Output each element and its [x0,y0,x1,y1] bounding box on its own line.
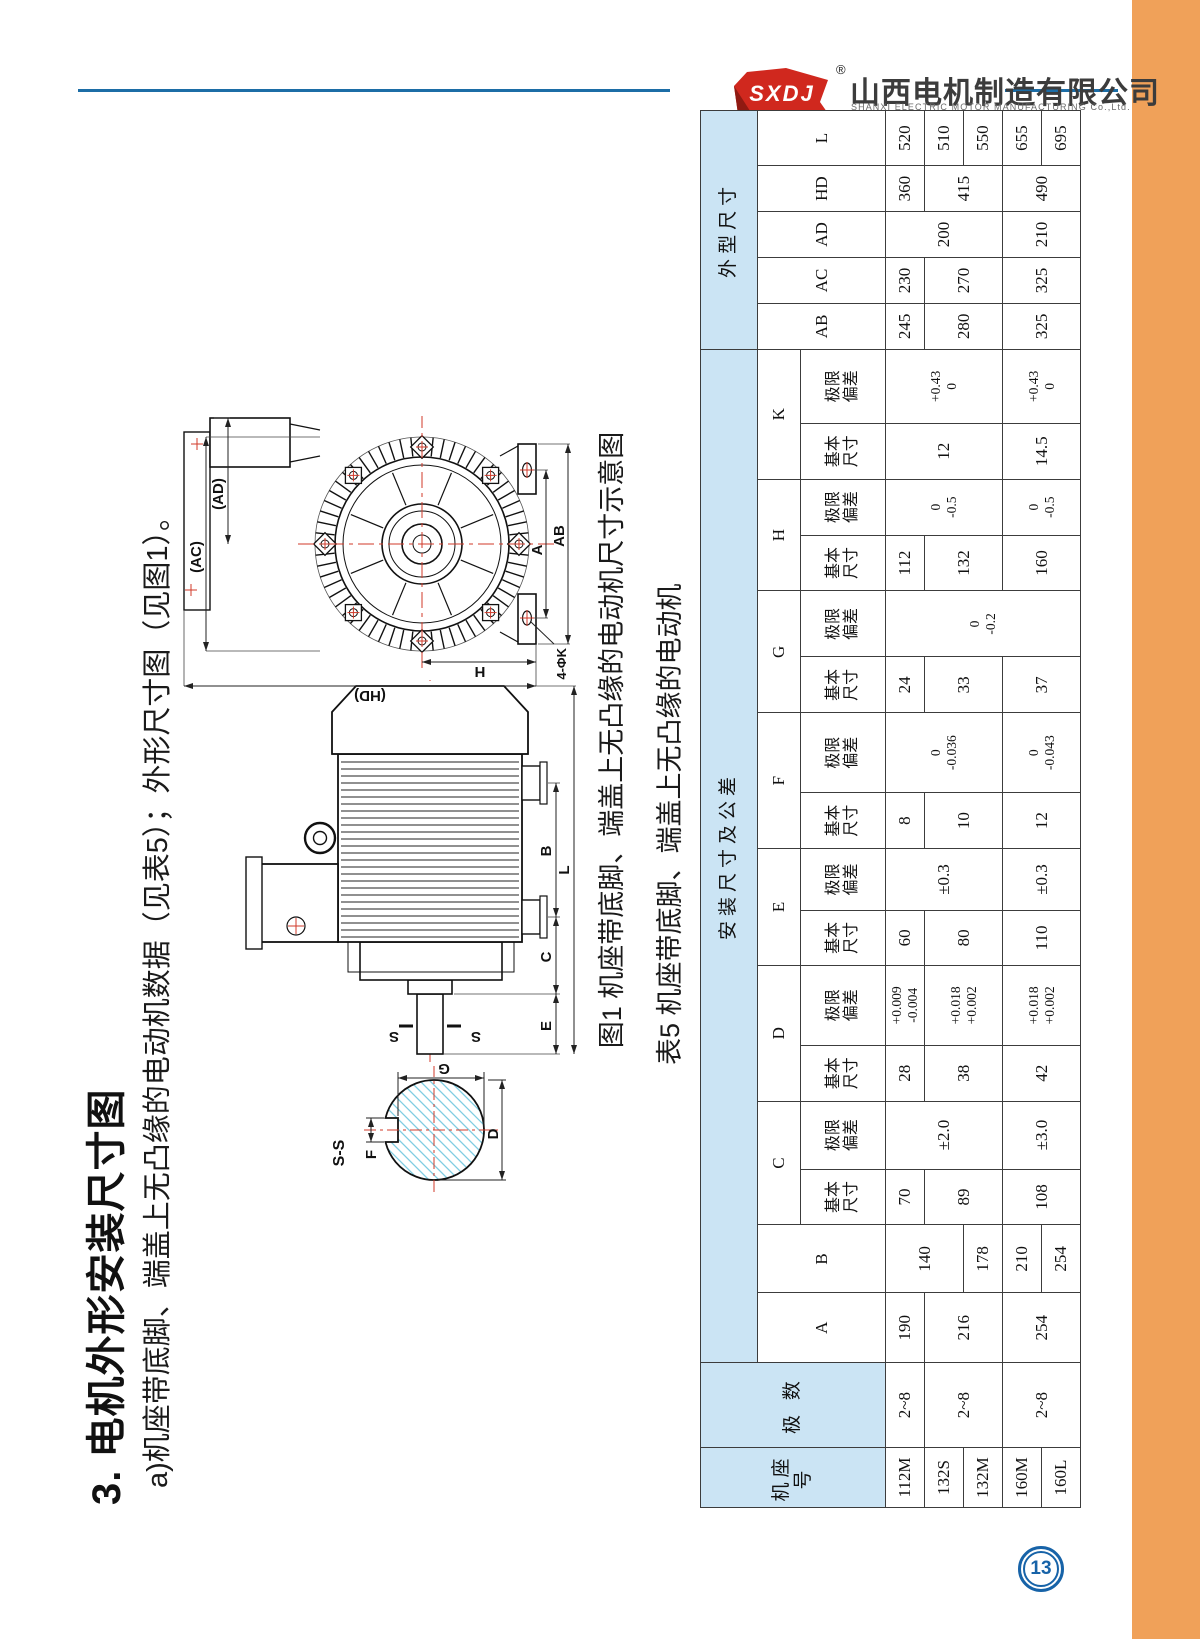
table-cell: 655 [1003,111,1042,166]
table-cell: D [758,965,801,1101]
table-cell: 210 [1003,1225,1042,1293]
table-cell: 190 [886,1293,925,1363]
dim-label-e: E [538,1021,555,1031]
figure-side-view: S S [198,674,580,1062]
dim-label-ad: (AD) [210,478,227,510]
table-cell: 12 [886,423,1003,479]
section-view-title: S-S [331,1139,348,1166]
table-cell: 200 [886,212,1003,258]
table-cell: 基本 尺寸 [801,423,886,479]
page-subtitle: a)机座带底脚、端盖上无凸缘的电动机数据（见表5）；外形尺寸图（见图1）。 [134,502,176,1488]
table-cell: E [758,849,801,966]
table-cell: 基本 尺寸 [801,1045,886,1101]
dim-label-l: L [556,865,573,874]
table-cell: A [758,1293,886,1363]
dim-label-d: D [485,1128,502,1139]
table-cell: 360 [886,166,925,212]
table-cell: 0 -0.043 [1003,713,1081,793]
table-cell: 520 [886,111,925,166]
table-cell: 510 [925,111,964,166]
page-edge-band [1132,0,1200,1639]
table-cell: +0.43 0 [1003,349,1081,423]
table-cell: HD [758,166,886,212]
rotated-content: 3. 电机外形安装尺寸图 a)机座带底脚、端盖上无凸缘的电动机数据（见表5）；外… [60,110,1080,1520]
table-cell: 230 [886,257,925,303]
table-cell: AD [758,212,886,258]
table-cell: C [758,1101,801,1225]
table-cell: 0 -0.036 [886,713,1003,793]
spec-table: 机座号极 数安装尺寸及公差外型尺寸ABCDEFGHKABACADHDL基本 尺寸… [700,110,1081,1508]
table-cell: 10 [925,793,1003,849]
table-cell: 24 [886,657,925,713]
table-cell: 112M [886,1448,925,1508]
table-cell: 极限 偏差 [801,349,886,423]
table-cell: 基本 尺寸 [801,910,886,965]
dim-label-g: G [438,1060,450,1077]
table-cell: F [758,713,801,849]
table-cell: 33 [925,657,1003,713]
table-cell: 0 -0.5 [1003,479,1081,535]
table-cell: 325 [1003,257,1081,303]
table-cell: 38 [925,1045,1003,1101]
table-cell: 极限 偏差 [801,1101,886,1169]
table-cell: 基本 尺寸 [801,793,886,849]
table-cell: 14.5 [1003,423,1081,479]
table-cell: +0.009 -0.004 [886,965,925,1045]
page-number-badge: 13 [1018,1546,1064,1592]
table-cell: 132 [925,535,1003,591]
header-rule-left [78,89,670,92]
page-title: 3. 电机外形安装尺寸图 [74,1089,132,1505]
catalog-page: SXDJ ® 山西电机制造有限公司 SHANXI ELECTRIC MOTOR … [0,0,1200,1639]
brand-logo-text: SXDJ [749,81,814,106]
table-cell: 2~8 [925,1363,1003,1448]
dim-label-a: A [529,544,546,555]
table-cell: 8 [886,793,925,849]
table-cell: +0.43 0 [886,349,1003,423]
table-cell: 112 [886,535,925,591]
table-cell: 机座号 [701,1448,886,1508]
table-cell: 极限 偏差 [801,713,886,793]
table-cell: 210 [1003,212,1081,258]
table-cell: 695 [1042,111,1081,166]
table-caption: 表5 机座带底脚、端盖上无凸缘的电动机 [648,583,687,1065]
table-cell: 极限 偏差 [801,849,886,911]
table-cell: 极限 偏差 [801,965,886,1045]
dim-label-ab: AB [551,525,568,547]
table-cell: 160L [1042,1448,1081,1508]
page-number: 13 [1023,1551,1059,1587]
table-cell: ±2.0 [886,1101,1003,1169]
table-cell: 安装尺寸及公差 [701,349,758,1362]
table-cell: 外型尺寸 [701,111,758,350]
figure-shaft-section-view: S-S F G D [326,1054,516,1212]
table-cell: 270 [925,257,1003,303]
table-cell: 140 [886,1225,964,1293]
table-cell: 216 [925,1293,1003,1363]
table-cell: H [758,479,801,591]
table-cell: ±0.3 [886,849,1003,911]
table-cell: 160 [1003,535,1081,591]
table-cell: ±0.3 [1003,849,1081,911]
table-cell: 37 [1003,657,1081,713]
brand-logo-icon: SXDJ [730,68,832,116]
table-cell: 70 [886,1169,925,1225]
table-cell: 2~8 [886,1363,925,1448]
table-cell: 178 [964,1225,1003,1293]
table-cell: 89 [925,1169,1003,1225]
table-cell: 42 [1003,1045,1081,1101]
table-cell: 12 [1003,793,1081,849]
table-cell: 132S [925,1448,964,1508]
table-cell: 极限 偏差 [801,479,886,535]
table-cell: 325 [1003,303,1081,349]
table-cell: +0.018 +0.002 [1003,965,1081,1045]
table-cell: +0.018 +0.002 [925,965,1003,1045]
table-cell: AB [758,303,886,349]
table-cell: 254 [1042,1225,1081,1293]
dim-label-k-callout: 4-ΦK [554,647,569,679]
table-cell: 极限 偏差 [801,591,886,657]
table-cell: B [758,1225,886,1293]
table-cell: 2~8 [1003,1363,1081,1448]
table-cell: 490 [1003,166,1081,212]
section-cut-label-bottom: S [471,1028,481,1045]
table-cell: ±3.0 [1003,1101,1081,1169]
table-cell: 254 [1003,1293,1081,1363]
dim-label-f: F [363,1150,380,1159]
table-cell: 基本 尺寸 [801,1169,886,1225]
dim-label-ac: (AC) [188,541,205,573]
registered-mark: ® [836,62,846,77]
table-cell: 极 数 [701,1363,886,1448]
table-cell: AC [758,257,886,303]
figure-caption: 图1 机座带底脚、端盖上无凸缘的电动机尺寸示意图 [590,380,629,1100]
table-cell: 415 [925,166,1003,212]
dim-label-b: B [538,845,555,856]
table-cell: 160M [1003,1448,1042,1508]
table-cell: L [758,111,886,166]
table-cell: 280 [925,303,1003,349]
table-cell: K [758,349,801,479]
table-cell: 60 [886,910,925,965]
dim-label-h: H [475,663,486,680]
table-cell: 110 [1003,910,1081,965]
dim-label-hd: (HD) [354,687,386,702]
table-cell: 0 -0.2 [886,591,1081,657]
table-cell: G [758,591,801,713]
table-cell: 108 [1003,1169,1081,1225]
table-cell: 550 [964,111,1003,166]
figure-end-view: (AC) (AD) (HD) H A AB 4-ΦK [180,402,582,702]
dim-label-c: C [538,951,555,962]
table-cell: 245 [886,303,925,349]
table-cell: 0 -0.5 [886,479,1003,535]
section-cut-label-top: S [389,1028,399,1045]
table-cell: 基本 尺寸 [801,657,886,713]
table-cell: 28 [886,1045,925,1101]
table-cell: 80 [925,910,1003,965]
table-cell: 132M [964,1448,1003,1508]
table-cell: 基本 尺寸 [801,535,886,591]
